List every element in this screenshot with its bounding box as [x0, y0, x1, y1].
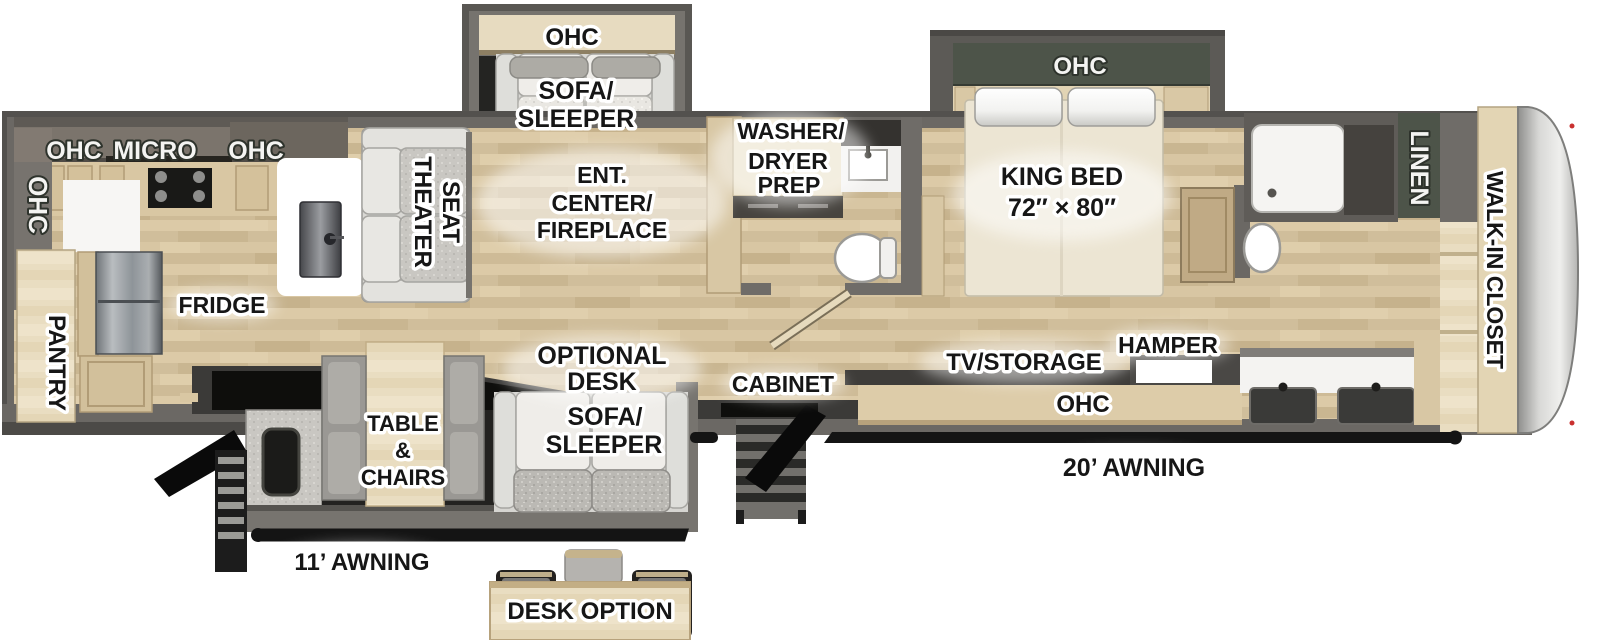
svg-text:HAMPER: HAMPER: [1118, 332, 1218, 358]
svg-text:OHC: OHC: [23, 176, 53, 234]
svg-text:CABINET: CABINET: [732, 371, 834, 397]
svg-text:CHAIRS: CHAIRS: [361, 465, 445, 490]
svg-text:KING BED: KING BED: [1001, 163, 1123, 191]
svg-text:DRYER: DRYER: [748, 148, 828, 174]
svg-text:OHC: OHC: [228, 137, 284, 165]
svg-text:OHC: OHC: [1056, 391, 1109, 418]
svg-text:DESK OPTION: DESK OPTION: [507, 598, 672, 625]
svg-text:SOFA/: SOFA/: [567, 403, 642, 431]
svg-text:SLEEPER: SLEEPER: [546, 431, 663, 459]
svg-text:OPTIONAL: OPTIONAL: [537, 342, 666, 370]
svg-text:20’ AWNING: 20’ AWNING: [1063, 454, 1205, 482]
svg-text:OHC: OHC: [46, 137, 102, 165]
svg-text:72″ × 80″: 72″ × 80″: [1008, 194, 1116, 222]
svg-text:SOFA/: SOFA/: [538, 77, 613, 105]
svg-text:&: &: [395, 438, 411, 463]
svg-text:SLEEPER: SLEEPER: [518, 105, 635, 133]
svg-text:FRIDGE: FRIDGE: [179, 292, 266, 318]
svg-text:11’ AWNING: 11’ AWNING: [294, 549, 429, 576]
svg-text:FIREPLACE: FIREPLACE: [537, 217, 667, 243]
svg-text:PANTRY: PANTRY: [43, 315, 70, 411]
svg-text:LINEN: LINEN: [1405, 131, 1433, 206]
svg-text:TABLE: TABLE: [367, 411, 439, 436]
svg-text:THEATER: THEATER: [409, 156, 436, 268]
svg-text:DESK: DESK: [567, 368, 636, 396]
svg-text:SEAT: SEAT: [437, 181, 464, 244]
svg-text:ENT.: ENT.: [577, 162, 627, 188]
svg-text:TV/STORAGE: TV/STORAGE: [946, 349, 1102, 376]
svg-text:WALK-IN CLOSET: WALK-IN CLOSET: [1482, 171, 1508, 369]
svg-text:OHC: OHC: [1053, 53, 1106, 80]
svg-text:CENTER/: CENTER/: [552, 190, 654, 216]
svg-text:PREP: PREP: [758, 172, 821, 198]
svg-text:MICRO: MICRO: [113, 137, 196, 165]
svg-text:OHC: OHC: [545, 24, 598, 51]
svg-text:WASHER/: WASHER/: [737, 118, 845, 144]
